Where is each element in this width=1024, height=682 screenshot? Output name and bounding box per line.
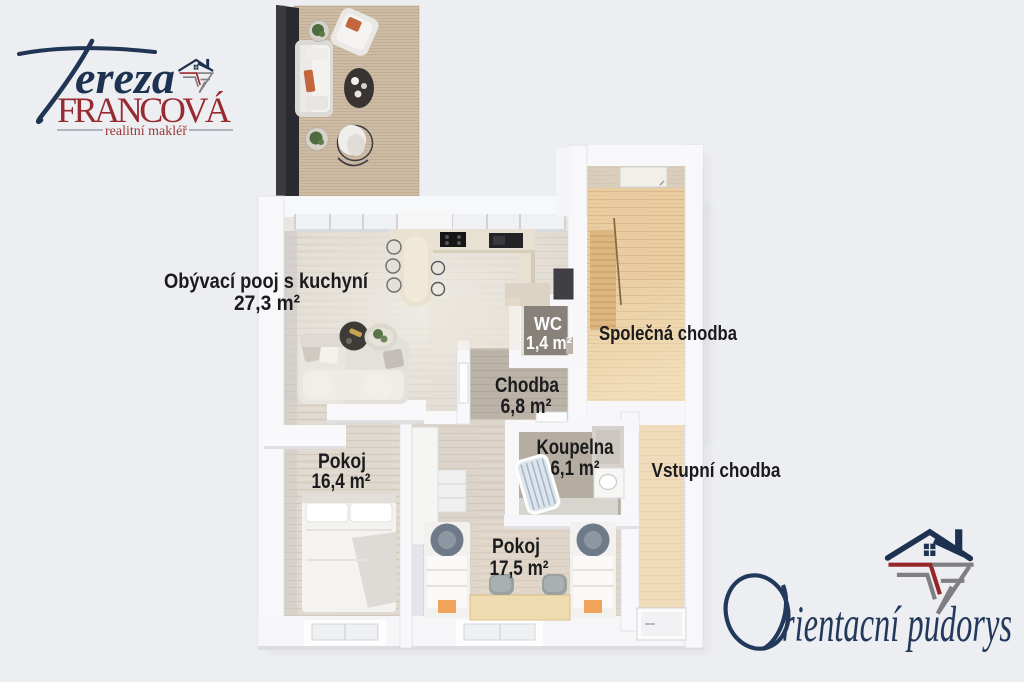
- svg-text:27,3 m²: 27,3 m²: [234, 291, 300, 315]
- svg-text:1,4 m²: 1,4 m²: [526, 333, 572, 353]
- svg-text:17,5 m²: 17,5 m²: [490, 557, 549, 580]
- svg-text:Vstupní chodba: Vstupní chodba: [652, 459, 782, 482]
- svg-text:Pokoj: Pokoj: [492, 535, 540, 558]
- svg-text:6,1 m²: 6,1 m²: [551, 457, 600, 480]
- svg-text:Společná chodba: Společná chodba: [599, 322, 737, 345]
- svg-text:Koupelna: Koupelna: [537, 436, 614, 459]
- svg-text:rientacní pudorys: rientacní pudorys: [782, 597, 1012, 653]
- svg-text:realitní makléř: realitní makléř: [105, 124, 187, 139]
- svg-text:WC: WC: [534, 314, 562, 334]
- svg-text:6,8 m²: 6,8 m²: [501, 395, 552, 418]
- svg-text:Obývací pooj s kuchyní: Obývací pooj s kuchyní: [164, 269, 369, 293]
- svg-text:Chodba: Chodba: [495, 374, 559, 397]
- svg-text:16,4 m²: 16,4 m²: [312, 470, 371, 493]
